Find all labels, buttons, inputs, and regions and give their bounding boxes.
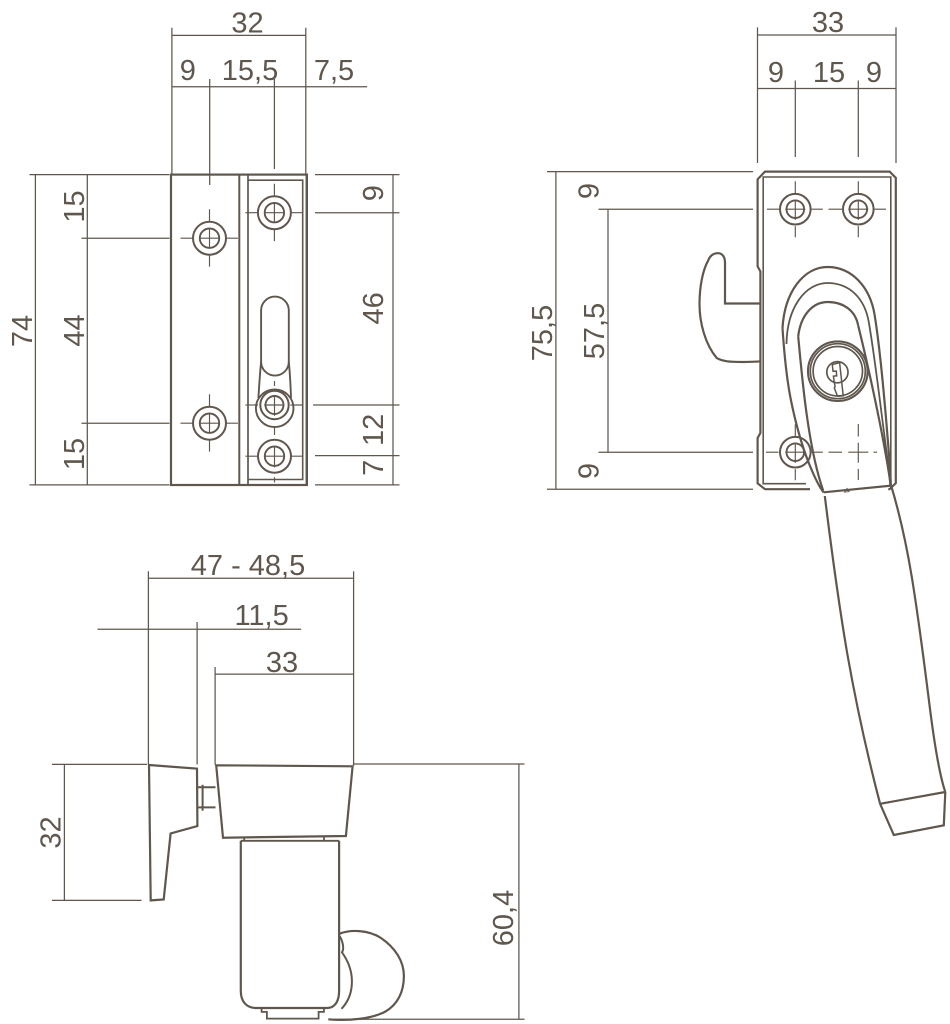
svg-text:15,5: 15,5 bbox=[222, 55, 278, 87]
svg-text:46: 46 bbox=[358, 292, 390, 324]
svg-text:11,5: 11,5 bbox=[234, 600, 288, 632]
svg-text:32: 32 bbox=[35, 816, 67, 848]
svg-text:47 - 48,5: 47 - 48,5 bbox=[191, 550, 305, 582]
svg-text:7,5: 7,5 bbox=[314, 55, 354, 87]
svg-text:74: 74 bbox=[7, 315, 39, 347]
svg-text:15: 15 bbox=[813, 57, 845, 89]
svg-text:9: 9 bbox=[866, 57, 882, 89]
svg-text:33: 33 bbox=[266, 647, 298, 679]
svg-text:9: 9 bbox=[180, 55, 196, 87]
svg-text:44: 44 bbox=[59, 314, 91, 346]
svg-text:7: 7 bbox=[358, 460, 390, 476]
svg-text:9: 9 bbox=[768, 57, 784, 89]
svg-text:15: 15 bbox=[59, 190, 91, 222]
svg-text:32: 32 bbox=[231, 7, 263, 39]
svg-text:9: 9 bbox=[358, 185, 390, 201]
svg-text:9: 9 bbox=[574, 463, 606, 479]
svg-text:57,5: 57,5 bbox=[579, 303, 611, 359]
svg-text:33: 33 bbox=[812, 7, 844, 39]
svg-text:60,4: 60,4 bbox=[488, 890, 520, 946]
svg-text:15: 15 bbox=[59, 438, 91, 470]
svg-text:12: 12 bbox=[358, 414, 390, 446]
svg-text:75,5: 75,5 bbox=[527, 305, 559, 361]
svg-text:9: 9 bbox=[574, 183, 606, 199]
